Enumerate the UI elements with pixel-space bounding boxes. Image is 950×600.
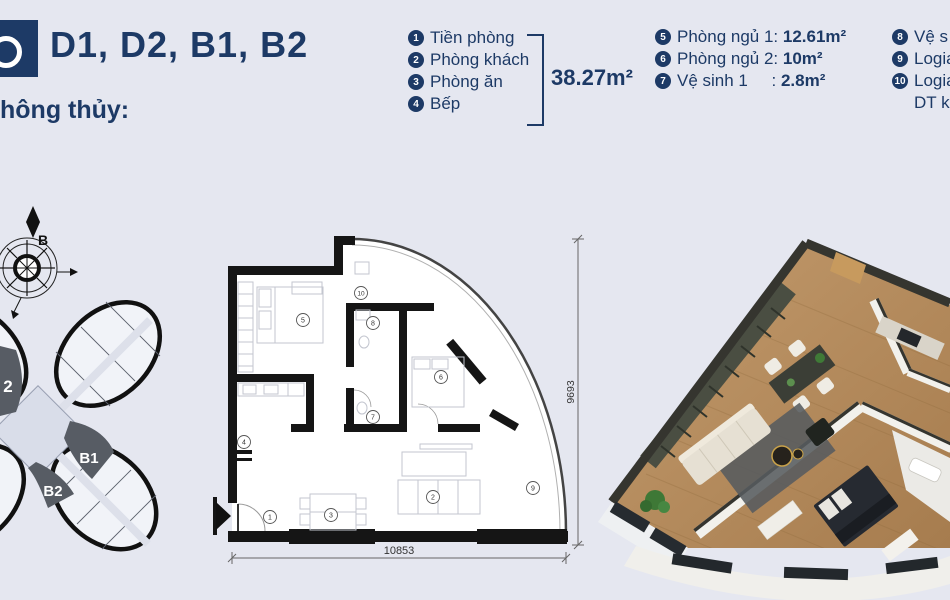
compass-rose-icon: B: [0, 206, 78, 319]
graphics-canvas: 2 B1 B2 B: [0, 0, 950, 600]
dim-width-label: 10853: [384, 545, 415, 557]
compass-north-label: B: [38, 232, 48, 248]
room-marker-label: 8: [371, 321, 375, 328]
room-marker-label: 2: [431, 495, 435, 502]
wedge-label: 2: [3, 377, 12, 396]
room-marker-label: 1: [268, 515, 272, 522]
render-plant: [658, 501, 670, 513]
render-front-glass: [784, 567, 848, 580]
site-plan: 2 B1 B2 B: [0, 206, 180, 570]
room-marker-label: 7: [371, 415, 375, 422]
entry-arrow-icon: [216, 502, 231, 530]
room-marker-label: 10: [357, 291, 365, 298]
floor-plan: 1 2 3 4 5 6 7 8 9 10 9693 10853: [213, 235, 584, 564]
render-plant: [640, 500, 652, 512]
room-marker-label: 3: [329, 513, 333, 520]
wedge-label: B1: [79, 450, 98, 467]
room-marker-label: 6: [439, 375, 443, 382]
dim-height-label: 9693: [565, 380, 577, 404]
room-marker-label: 5: [301, 318, 305, 325]
page-background: { "colors": { "accent_navy": "#1d3a66", …: [0, 0, 950, 600]
room-marker-label: 9: [531, 486, 535, 493]
wedge-label: B2: [43, 483, 62, 500]
room-marker-label: 4: [242, 440, 246, 447]
render-3d-view: [598, 243, 950, 600]
